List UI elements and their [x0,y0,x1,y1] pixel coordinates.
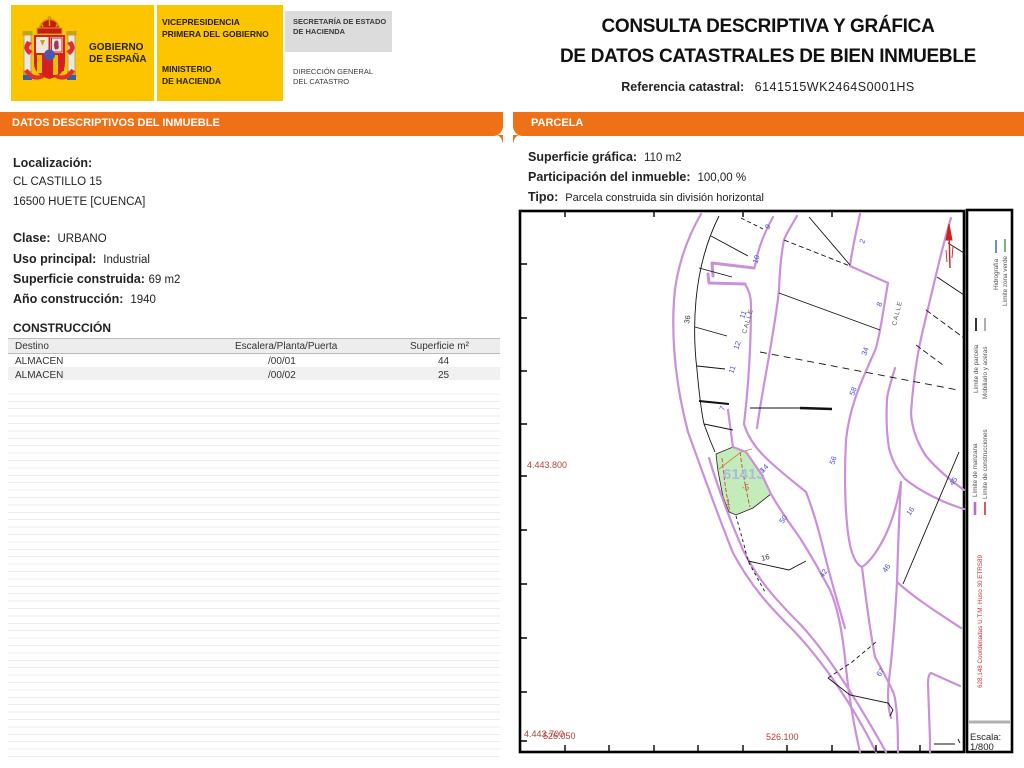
svg-text:-5: -5 [742,483,750,492]
svg-text:1: 1 [726,498,731,507]
svg-text:Límite de parcela: Límite de parcela [973,344,980,393]
svg-text:Mobiliario y aceras: Mobiliario y aceras [982,347,989,400]
svg-text:1/800: 1/800 [970,742,994,753]
svg-text:Límite de manzana: Límite de manzana [972,443,979,497]
svg-text:526.050: 526.050 [543,731,576,741]
svg-text:36: 36 [682,315,692,325]
svg-text:628,148 Coordenadas U.T.M. Hus: 628,148 Coordenadas U.T.M. Huso 30 ETRS8… [977,554,984,688]
svg-text:Límite zona verde: Límite zona verde [1002,255,1009,306]
svg-text:526.100: 526.100 [766,732,799,742]
svg-text:Límite de construcciones: Límite de construcciones [982,429,989,499]
svg-text:Hidrografía: Hidrografía [993,258,1000,290]
svg-text:4.443.800: 4.443.800 [527,460,567,470]
